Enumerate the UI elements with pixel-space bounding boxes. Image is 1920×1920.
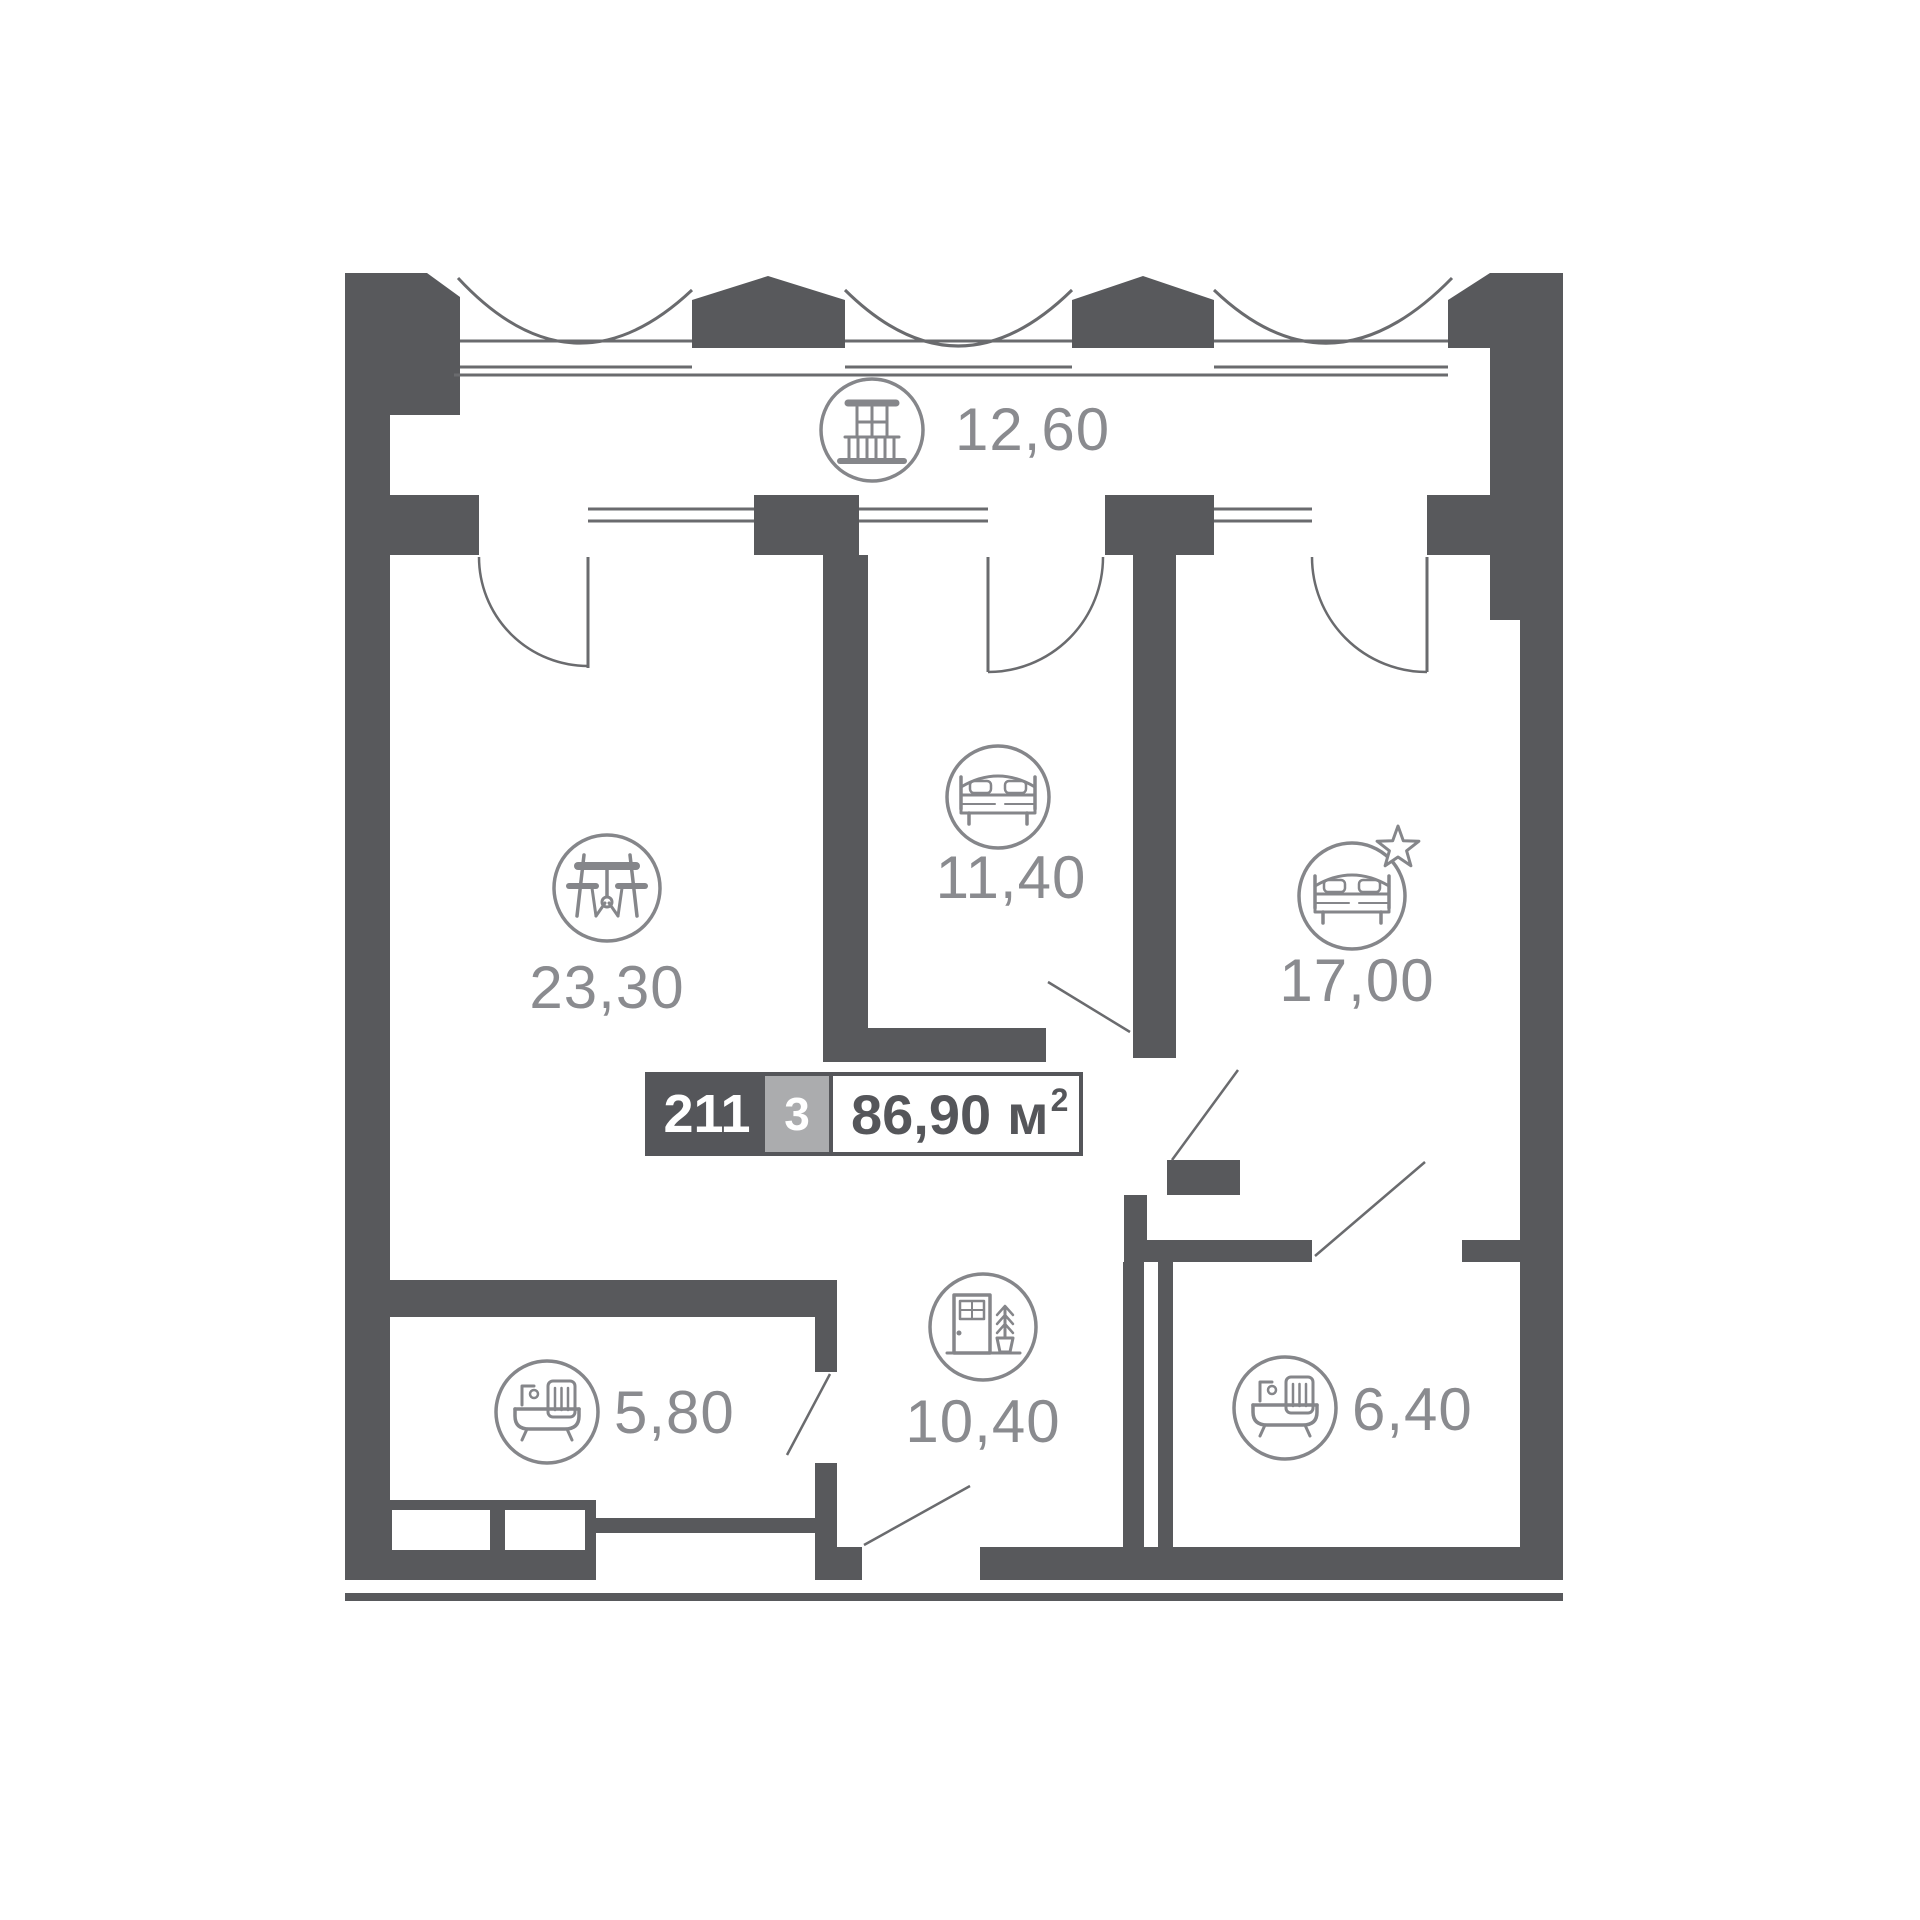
balcony-glazing: [454, 278, 1452, 375]
room-balcony: 12,60: [821, 379, 1110, 481]
bathtub-icon: [496, 1361, 598, 1463]
room-master-bedroom: 17,00: [1279, 826, 1434, 1014]
bathtub-icon: [1234, 1357, 1336, 1459]
unit-area: 86,90 м 2: [829, 1076, 1079, 1152]
room-area-label: 17,00: [1279, 947, 1434, 1014]
balcony-icon: [821, 379, 923, 481]
room-bathroom-1: 5,80: [496, 1361, 735, 1463]
unit-rooms-count: 3: [765, 1076, 829, 1152]
unit-area-superscript: 2: [1051, 1082, 1069, 1119]
room-area-label: 12,60: [955, 396, 1110, 463]
dining-table-icon: [554, 835, 660, 941]
bottom-window-cutouts: [392, 1510, 585, 1550]
floor-plan-drawing: 12,60 23,30: [0, 0, 1920, 1920]
door-plant-icon: [930, 1274, 1036, 1380]
star-icon: [1377, 826, 1419, 866]
room-bedroom: 11,40: [936, 746, 1087, 911]
unit-area-value: 86,90: [851, 1082, 991, 1147]
bed-icon: [947, 746, 1049, 848]
unit-badge[interactable]: 211 3 86,90 м 2: [645, 1072, 1083, 1156]
room-area-label: 10,40: [905, 1388, 1060, 1455]
bed-star-icon: [1299, 826, 1419, 949]
unit-area-unit: м: [1007, 1082, 1048, 1147]
room-hallway: 10,40: [905, 1274, 1060, 1455]
room-bathroom-2: 6,40: [1234, 1357, 1473, 1459]
room-area-label: 11,40: [936, 844, 1087, 911]
room-area-label: 6,40: [1352, 1376, 1473, 1443]
room-area-label: 5,80: [614, 1379, 735, 1446]
floor-plan-page: 12,60 23,30: [0, 0, 1920, 1920]
room-living: 23,30: [529, 835, 684, 1021]
room-area-label: 23,30: [529, 954, 684, 1021]
unit-number: 211: [649, 1076, 765, 1152]
